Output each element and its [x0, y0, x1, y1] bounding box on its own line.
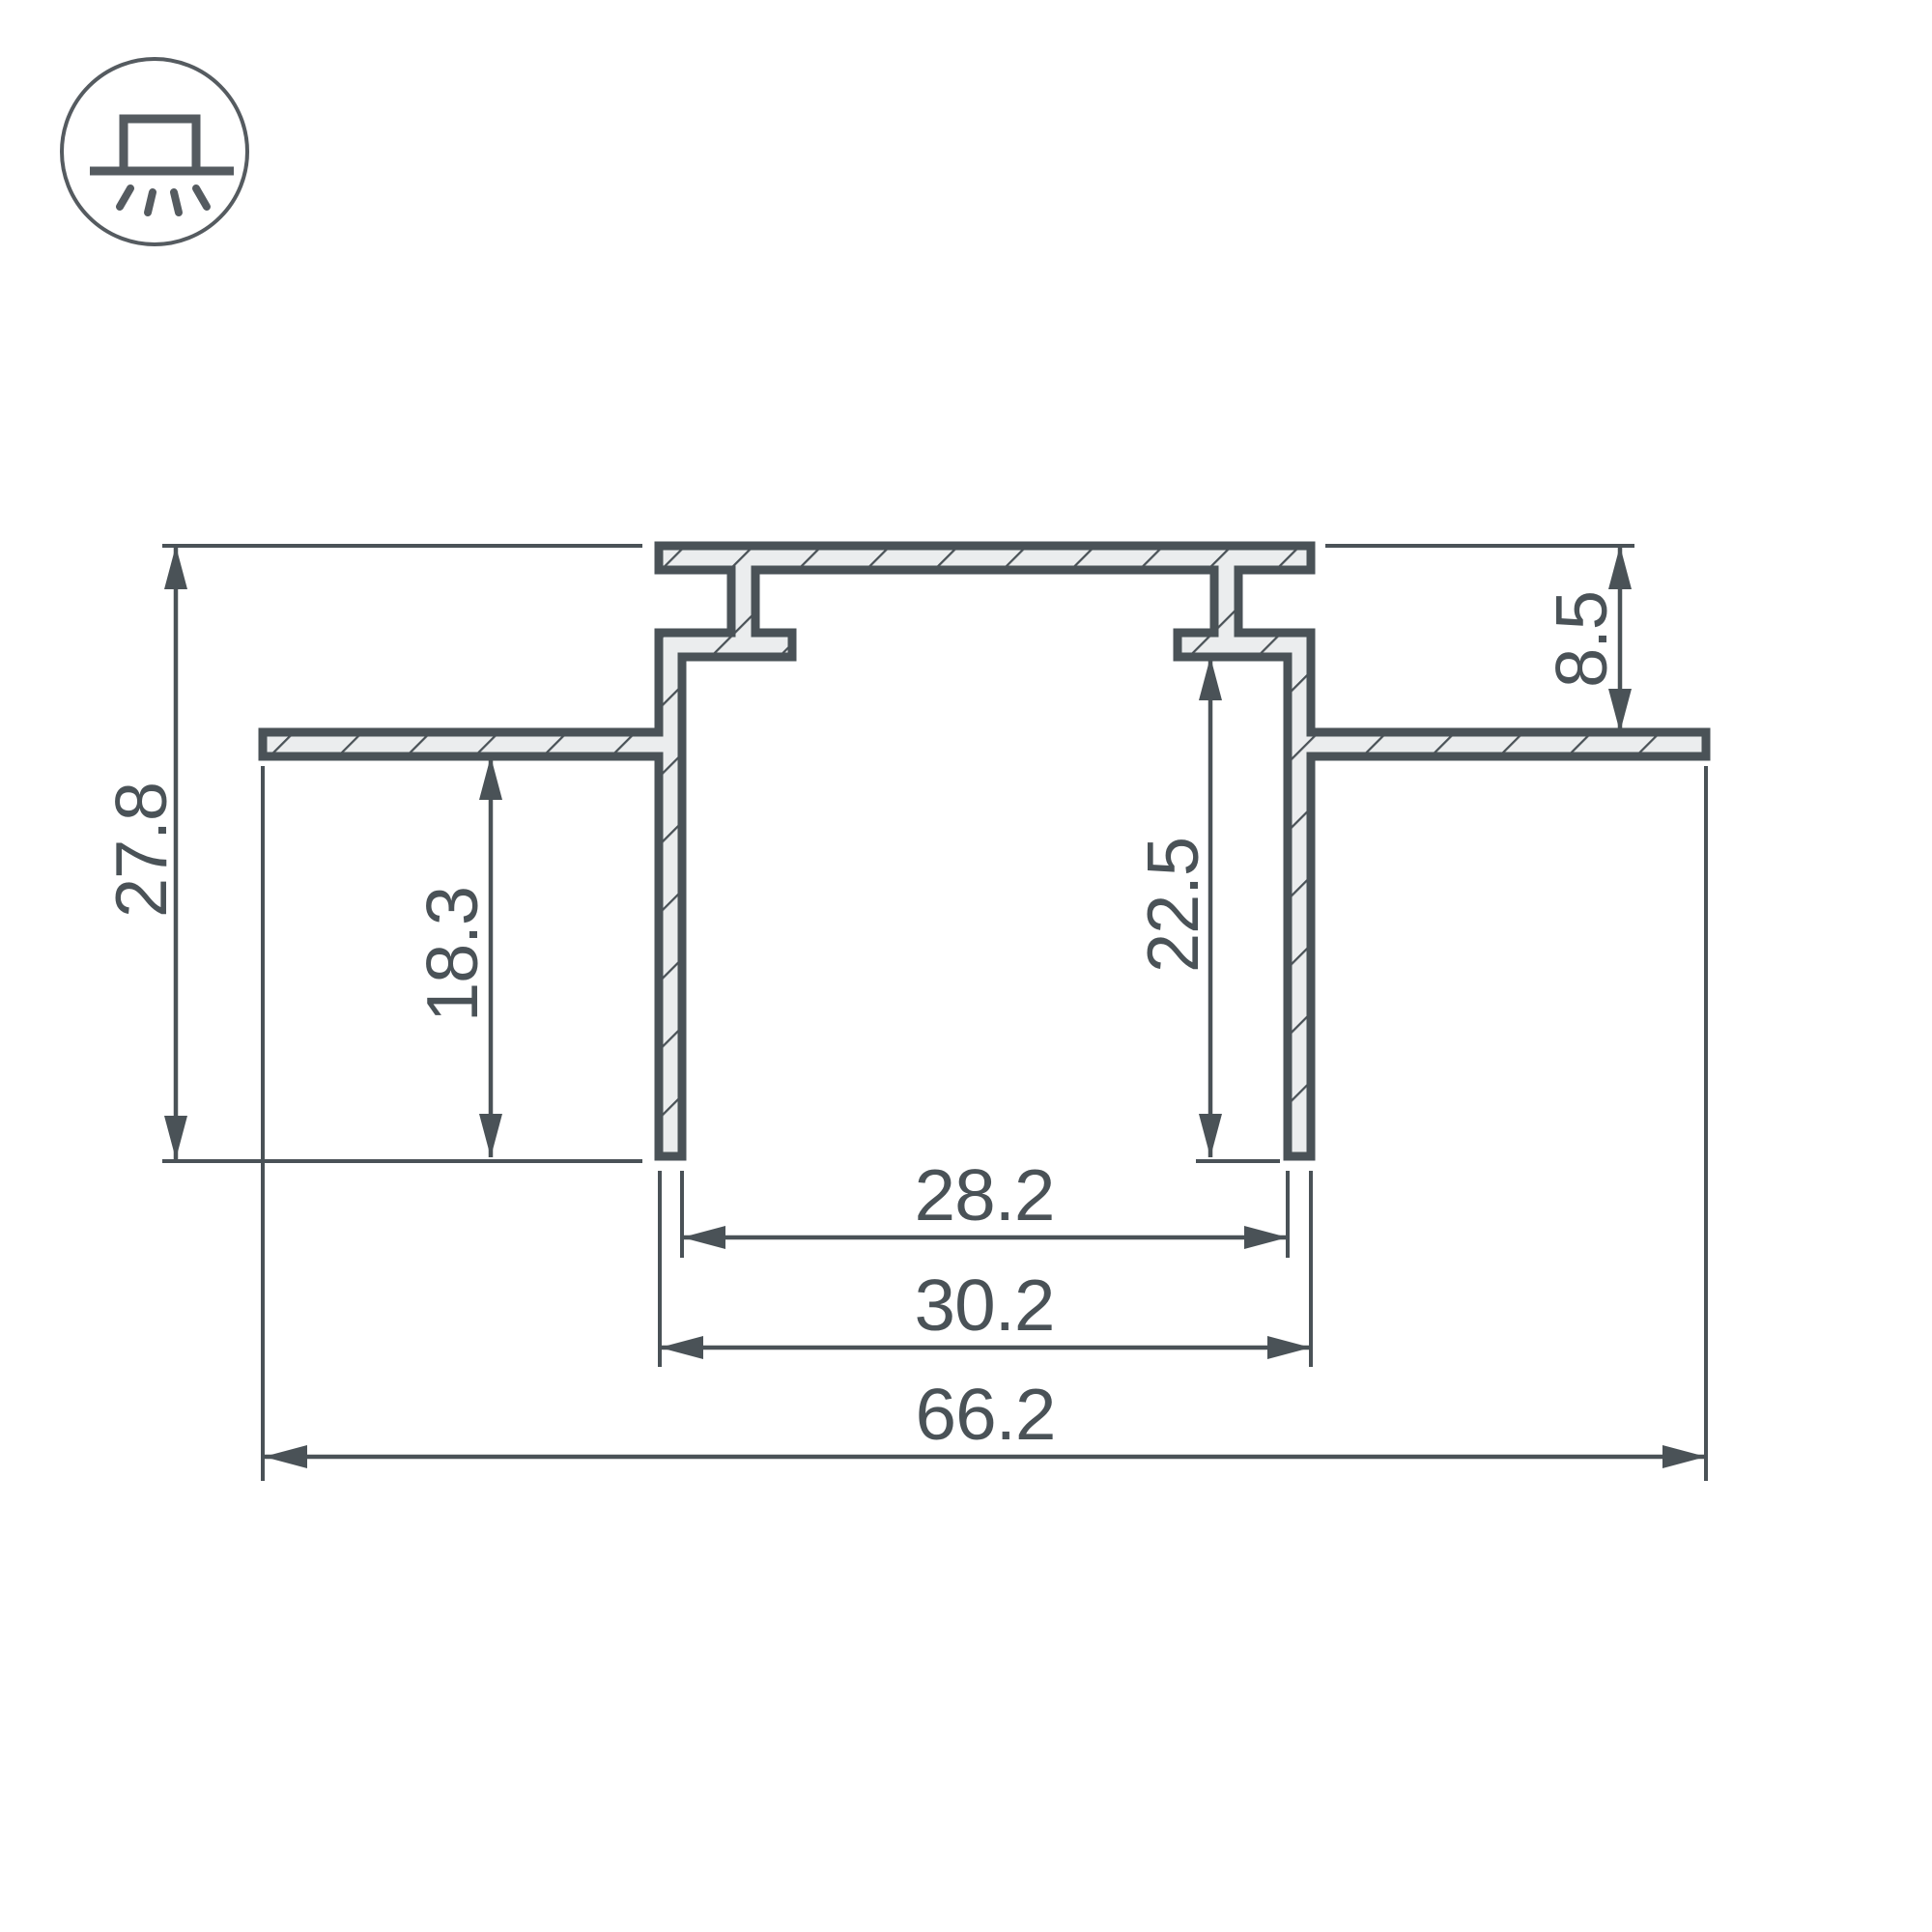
dim-label-inner-width: 28.2: [915, 1154, 1055, 1236]
dim-label-overall-width: 66.2: [916, 1374, 1056, 1455]
arrowhead-up: [479, 756, 502, 800]
dimension-inner-depth: 22.5: [1132, 657, 1222, 1157]
icon-fixture-box: [124, 119, 196, 171]
arrowhead-right: [1267, 1336, 1311, 1359]
arrowhead-down: [1608, 689, 1632, 732]
dim-label-overall-height: 27.8: [100, 782, 182, 918]
arrowhead-down: [1199, 1114, 1222, 1157]
dimension-flange-depth: 18.3: [412, 756, 502, 1157]
icon-circle: [62, 59, 247, 244]
arrowhead-down: [479, 1114, 502, 1157]
dimension-recess-height: 8.5: [1541, 546, 1632, 732]
arrowhead-right: [1662, 1445, 1706, 1468]
arrowhead-left: [682, 1226, 725, 1249]
profile-section-outline: [263, 546, 1706, 1156]
icon-light-rays: [120, 188, 207, 213]
dimension-outer-width: 30.2: [660, 1264, 1311, 1359]
dim-label-outer-width: 30.2: [915, 1264, 1055, 1346]
arrowhead-right: [1244, 1226, 1288, 1249]
technical-drawing: 27.8 18.3 8.5 22.5 28.2 30.2: [0, 0, 1932, 1932]
dimension-overall-height: 27.8: [100, 546, 187, 1159]
arrowhead-up: [1608, 546, 1632, 589]
arrowhead-left: [264, 1445, 307, 1468]
dim-label-inner-depth: 22.5: [1132, 838, 1213, 973]
drawing-canvas: 27.8 18.3 8.5 22.5 28.2 30.2: [0, 0, 1932, 1932]
dim-label-flange-depth: 18.3: [412, 887, 493, 1022]
arrowhead-left: [660, 1336, 703, 1359]
recessed-light-icon: [62, 59, 247, 244]
arrowhead-up: [164, 546, 187, 589]
arrowhead-up: [1199, 657, 1222, 700]
dimension-overall-width: 66.2: [264, 1374, 1706, 1468]
dimension-inner-width: 28.2: [682, 1154, 1288, 1249]
arrowhead-down: [164, 1116, 187, 1159]
dim-label-recess-height: 8.5: [1541, 591, 1622, 688]
